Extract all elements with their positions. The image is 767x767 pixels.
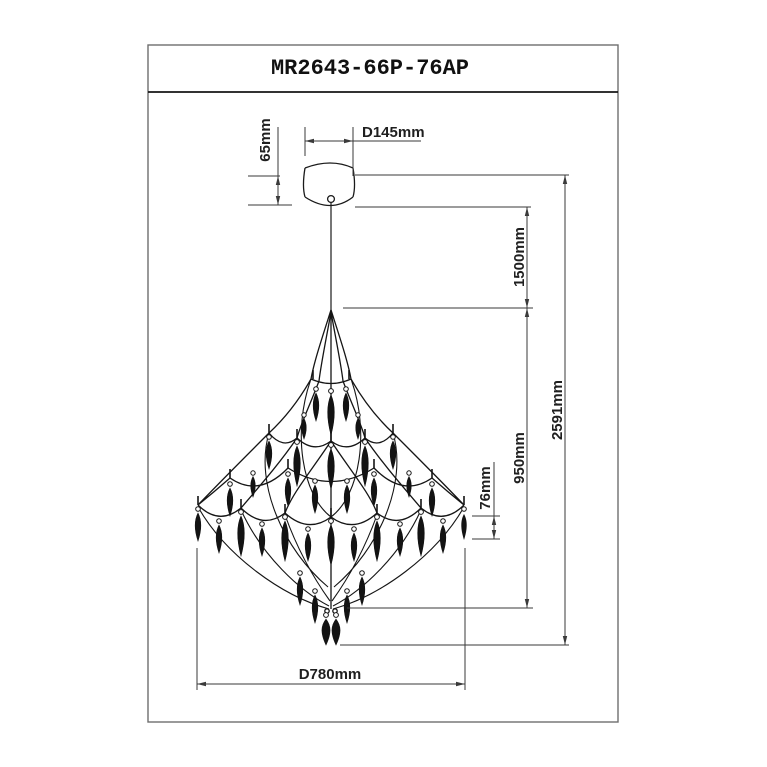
title-block: MR2643-66P-76AP <box>148 45 618 722</box>
arrowhead <box>525 308 529 317</box>
crystal-drop <box>440 519 446 553</box>
crystal-drop <box>343 387 349 421</box>
arrowhead <box>276 176 280 185</box>
canopy-left-side <box>304 168 306 197</box>
crystal-drop <box>216 519 222 553</box>
arrowhead <box>492 530 496 539</box>
arrowhead <box>563 175 567 184</box>
arrowhead <box>276 196 280 205</box>
dim-label-crystal-height: 76mm <box>477 466 494 509</box>
dim-suspension-length: 1500mm <box>511 207 529 308</box>
arrowhead <box>525 599 529 608</box>
crystal-drop <box>259 522 265 556</box>
crystal-drop <box>351 527 357 561</box>
crystal-drop <box>251 471 256 497</box>
crystal-drop <box>356 413 361 439</box>
crystal-drop <box>407 471 412 497</box>
ceiling-canopy <box>304 163 355 310</box>
dim-label-canopy-height: 65mm <box>257 118 274 161</box>
dim-label-body-height: 950mm <box>511 432 528 484</box>
dim-label-overall-height: 2591mm <box>549 380 566 440</box>
crystal-drop <box>238 510 245 556</box>
crystal-drop <box>305 527 311 561</box>
arrowhead <box>456 682 465 686</box>
crystal-drop-76mm <box>461 507 466 540</box>
arrowhead <box>197 682 206 686</box>
crystal-drop <box>418 510 425 556</box>
cord-attachment-ring <box>328 196 335 203</box>
dim-body-height: 950mm <box>511 308 529 608</box>
crystal-drop <box>294 440 301 486</box>
crystal-drop <box>429 482 435 516</box>
crystal-drop <box>332 613 340 645</box>
drawing-frame <box>148 45 618 722</box>
arrowhead <box>344 139 353 143</box>
crystal-drop <box>312 589 318 623</box>
dim-overall-height: 2591mm <box>549 175 567 645</box>
crystal-drop <box>312 479 318 513</box>
crystal-drop <box>227 482 233 516</box>
canopy-top-rim <box>305 163 353 168</box>
technical-drawing: MR2643-66P-76AP <box>0 0 767 767</box>
model-number-title: MR2643-66P-76AP <box>271 56 469 81</box>
crystal-drop <box>313 387 319 421</box>
crystal-drop <box>195 507 201 541</box>
dim-label-canopy-diameter: D145mm <box>362 124 425 141</box>
dim-label-suspension-length: 1500mm <box>511 227 528 287</box>
crystal-drop <box>359 571 365 605</box>
arrowhead <box>305 139 314 143</box>
crystal-drop <box>297 571 303 605</box>
dim-canopy-height: 65mm <box>248 118 292 205</box>
arrowhead <box>525 299 529 308</box>
drawing-page: MR2643-66P-76AP <box>0 0 767 767</box>
arrowhead <box>563 636 567 645</box>
dim-canopy-diameter: D145mm <box>305 124 425 176</box>
crystal-drop <box>322 613 330 645</box>
arrowhead <box>525 207 529 216</box>
crystal-drop <box>328 519 335 565</box>
arrowhead <box>492 516 496 525</box>
dim-crystal-height: 76mm <box>472 462 500 539</box>
crystal-drop <box>362 440 369 486</box>
crystal-drop <box>344 589 350 623</box>
crystal-drop <box>302 413 307 439</box>
dim-label-body-diameter: D780mm <box>299 666 362 683</box>
reference-lines <box>340 175 569 645</box>
crystal-drop <box>328 389 335 435</box>
crystal-drop <box>397 522 403 556</box>
crystal-drop <box>344 479 350 513</box>
